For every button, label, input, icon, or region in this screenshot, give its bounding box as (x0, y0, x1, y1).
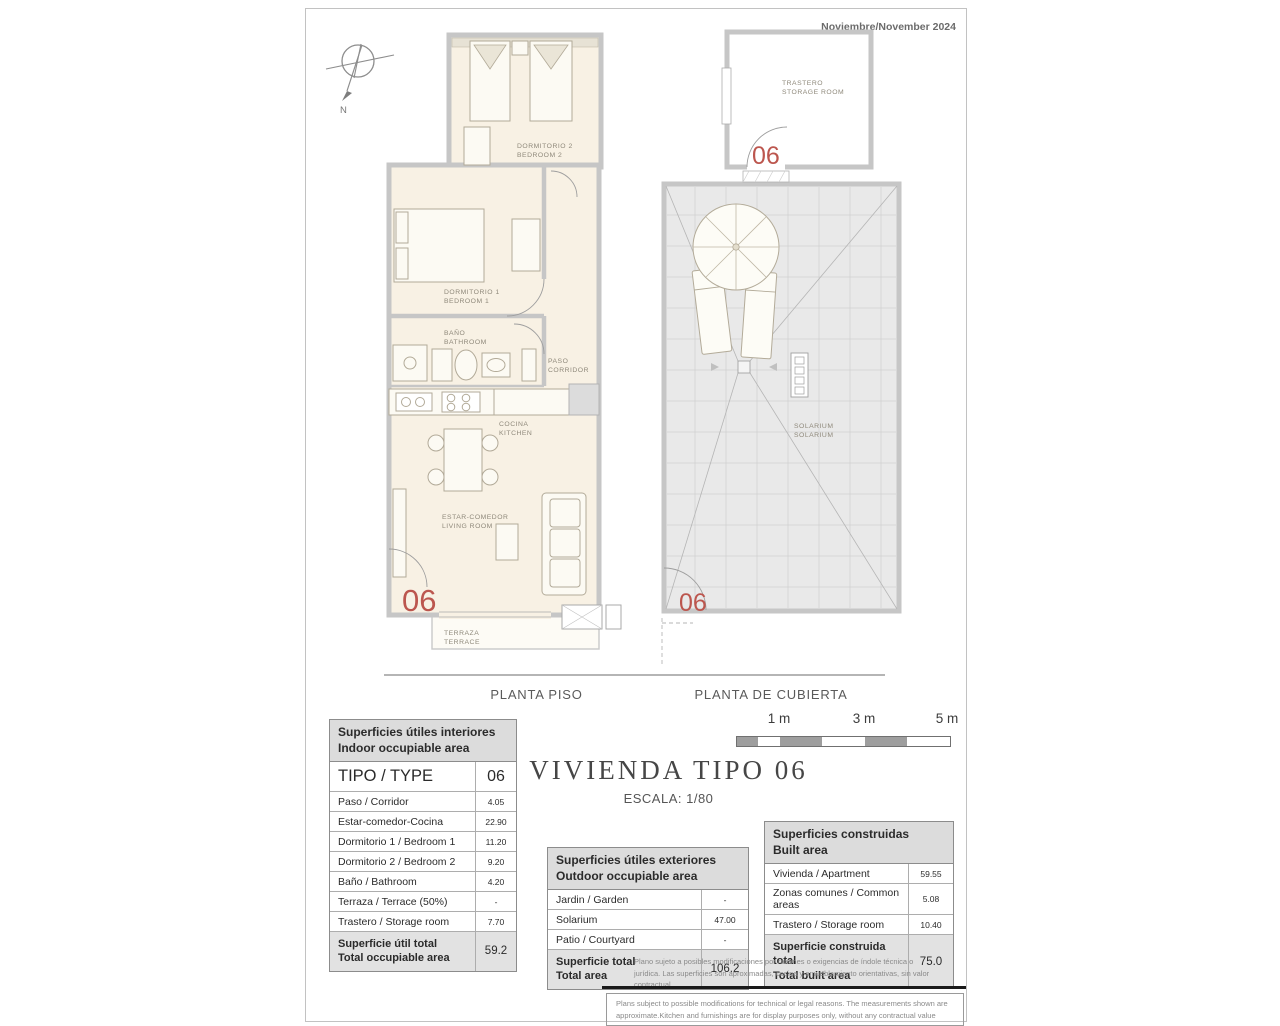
table-interior-header: Superficies útiles interiores Indoor occ… (330, 720, 516, 762)
title-block: VIVIENDA TIPO 06 ESCALA: 1/80 (496, 755, 841, 806)
scale-bar: 1 m 3 m 5 m (736, 711, 949, 751)
table-row: Trastero / Storage room10.40 (765, 915, 953, 935)
table-row: Terraza / Terrace (50%)- (330, 892, 516, 912)
table-exterior-header: Superficies útiles exteriores Outdoor oc… (548, 848, 748, 890)
room-label-corridor-en: CORRIDOR (548, 367, 589, 374)
floor-plan-planta-piso: DORMITORIO 2 BEDROOM 2 DORMITORIO 1 BEDR… (384, 27, 654, 687)
storage-window (722, 68, 731, 124)
table-row: Estar-comedor-Cocina22.90 (330, 812, 516, 832)
roof-plan-planta-cubierta: SOLARIUM SOLARIUM 06 TRASTERO STORAGE RO… (651, 23, 911, 678)
room-label-kitchen-en: KITCHEN (499, 430, 532, 437)
scale-label-3m: 3 m (847, 711, 881, 726)
room-label-bedroom1: DORMITORIO 1 (444, 289, 500, 296)
table-row: Solarium47.00 (548, 910, 748, 930)
room-label-living-en: LIVING ROOM (442, 523, 493, 530)
exterior-utility (562, 605, 621, 629)
room-label-solarium: SOLARIUM (794, 423, 834, 430)
table-row-total: Superficie útil totalTotal occupiable ar… (330, 932, 516, 971)
room-label-terrace-en: TERRACE (444, 639, 480, 646)
compass-n-label: N (340, 105, 347, 116)
tv-stand (496, 524, 518, 560)
room-label-corridor: PASO (548, 358, 568, 365)
storage-step (743, 171, 789, 182)
scale-label-5m: 5 m (930, 711, 964, 726)
table-row: Paso / Corridor4.05 (330, 792, 516, 812)
utility-column (569, 384, 599, 415)
scale-label-1m: 1 m (762, 711, 796, 726)
scale-bar-segments (736, 736, 951, 747)
table-row: Zonas comunes / Common areas5.08 (765, 884, 953, 915)
table-row: Baño / Bathroom4.20 (330, 872, 516, 892)
room-label-storage-en: STORAGE ROOM (782, 89, 844, 96)
unit-number-solarium: 06 (679, 589, 707, 617)
room-label-bedroom1-en: BEDROOM 1 (444, 298, 489, 305)
scale-text: ESCALA: 1/80 (496, 791, 841, 806)
roof-drain (738, 361, 750, 373)
sideboard (393, 489, 406, 577)
room-label-kitchen: COCINA (499, 421, 528, 428)
table-row: Jardin / Garden- (548, 890, 748, 910)
room-label-terrace: TERRAZA (444, 630, 479, 637)
sheet-title: VIVIENDA TIPO 06 (496, 755, 841, 786)
storage-room-walls (727, 32, 871, 167)
room-label-solarium-en: SOLARIUM (794, 432, 834, 439)
table-row-type: TIPO / TYPE 06 (330, 762, 516, 792)
divider-bar (602, 986, 966, 989)
unit-number-storage: 06 (752, 142, 780, 170)
caption-planta-cubierta: PLANTA DE CUBIERTA (657, 674, 885, 702)
room-label-bath-en: BATHROOM (444, 339, 487, 346)
table-row: Vivienda / Apartment59.55 (765, 864, 953, 884)
caption-planta-piso: PLANTA PISO (384, 674, 689, 702)
room-label-bedroom2: DORMITORIO 2 (517, 143, 573, 150)
roof-vent (791, 353, 808, 397)
parasol (693, 204, 779, 290)
bedroom1-furniture (394, 209, 540, 282)
disclaimer-english: Plans subject to possible modifications … (606, 993, 964, 1026)
table-built-header: Superficies construidas Built area (765, 822, 953, 864)
kitchen-appliances (396, 389, 494, 415)
unit-number-plan: 06 (402, 583, 436, 618)
room-label-bedroom2-en: BEDROOM 2 (517, 152, 562, 159)
sofa (542, 493, 586, 595)
table-row: Dormitorio 2 / Bedroom 29.20 (330, 852, 516, 872)
room-label-living: ESTAR-COMEDOR (442, 514, 508, 521)
table-row: Trastero / Storage room7.70 (330, 912, 516, 932)
room-label-storage: TRASTERO (782, 80, 823, 87)
terrace-projection-dashed (662, 618, 693, 665)
room-label-bath: BAÑO (444, 328, 465, 337)
table-interior-areas: Superficies útiles interiores Indoor occ… (329, 719, 517, 972)
table-row: Patio / Courtyard- (548, 930, 748, 950)
table-row: Dormitorio 1 / Bedroom 111.20 (330, 832, 516, 852)
plan-sheet: Noviembre/November 2024 N DORMITORIO 2 B… (305, 8, 967, 1022)
